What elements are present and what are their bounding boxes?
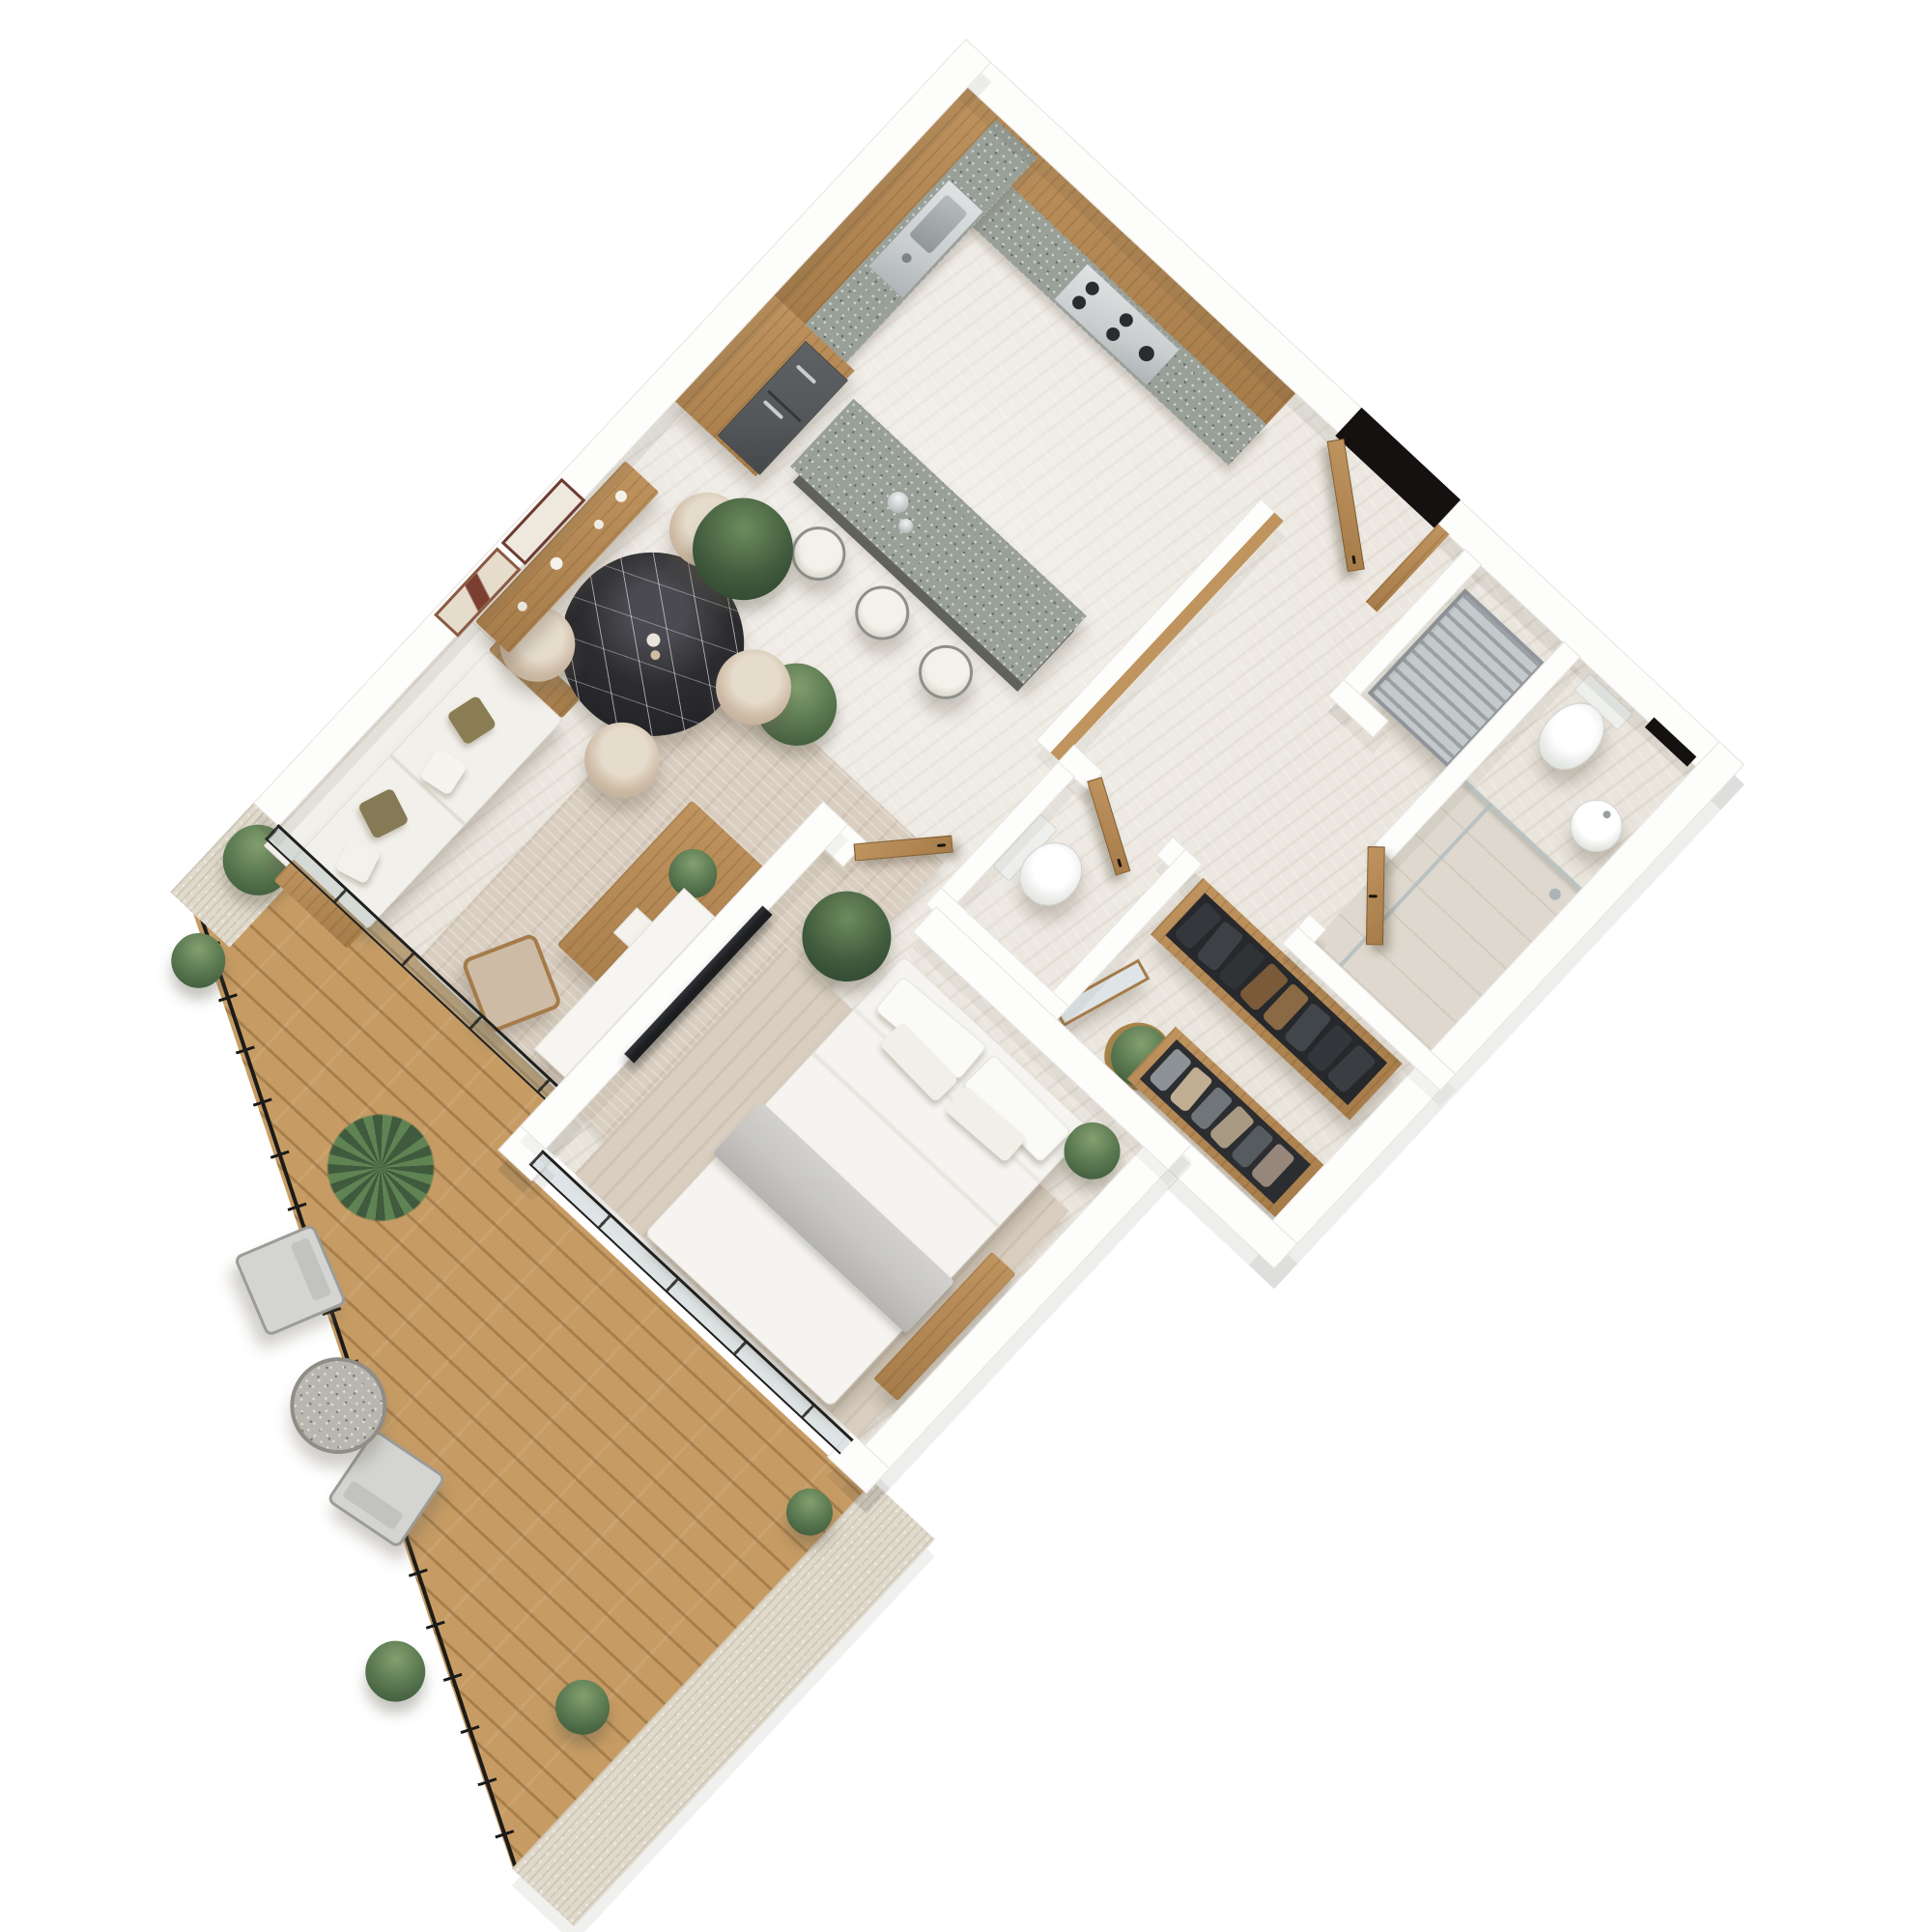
basin-faucet-icon bbox=[1602, 810, 1612, 820]
tableware bbox=[644, 631, 664, 650]
burner bbox=[1117, 310, 1136, 329]
sink-faucet-icon bbox=[900, 251, 914, 265]
burner bbox=[1136, 343, 1158, 365]
burner bbox=[1083, 279, 1102, 298]
bed-throw bbox=[712, 1101, 954, 1334]
burner bbox=[1103, 325, 1122, 344]
fridge-handle-icon bbox=[796, 364, 817, 384]
bathroom-door bbox=[1366, 846, 1385, 945]
floor-plan-canvas bbox=[0, 0, 1932, 1932]
burner bbox=[1069, 293, 1089, 312]
vase-icon bbox=[592, 518, 606, 531]
tableware bbox=[648, 648, 662, 662]
vase-icon bbox=[612, 488, 629, 504]
vase-icon bbox=[548, 554, 565, 572]
island-vase-icon bbox=[895, 516, 916, 536]
outdoor-chair-back bbox=[342, 1480, 404, 1530]
plant-bush-icon bbox=[354, 1630, 439, 1715]
vase-icon bbox=[516, 600, 529, 613]
island-vase-icon bbox=[883, 487, 913, 517]
floor-plan bbox=[0, 39, 1743, 1932]
